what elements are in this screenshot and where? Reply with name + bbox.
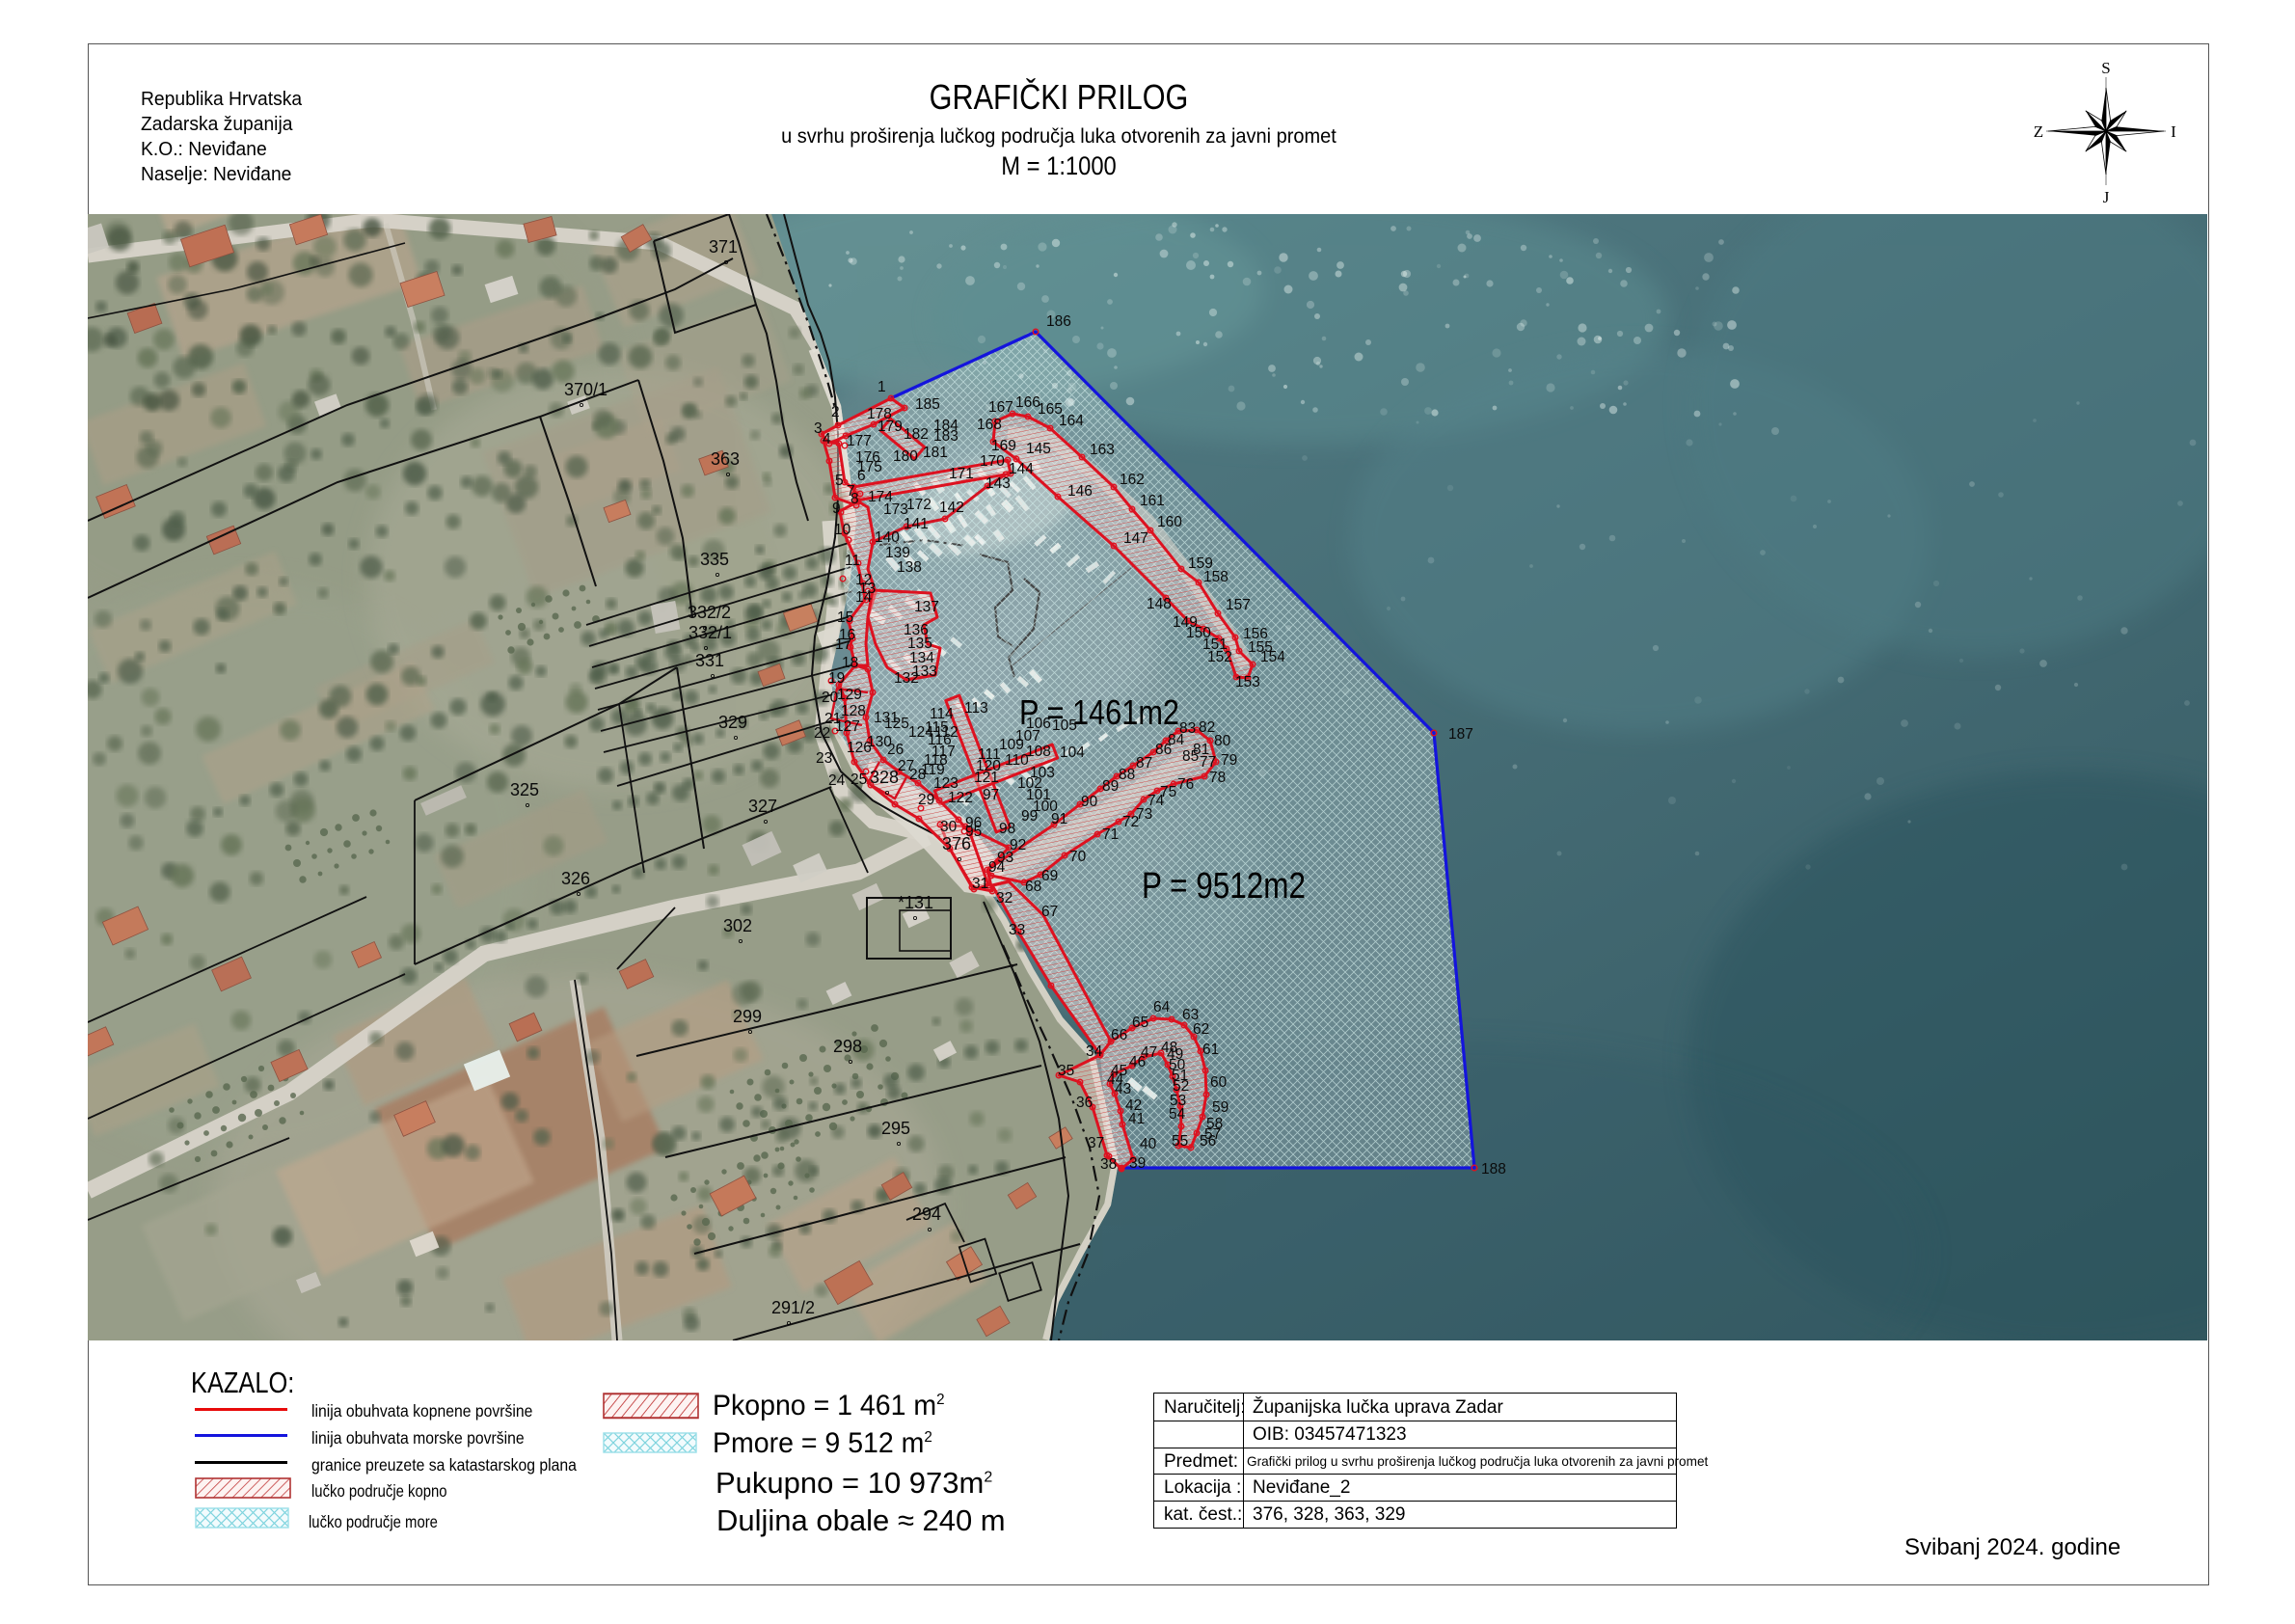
svg-text:69: 69 <box>1041 868 1058 884</box>
svg-text:291/2: 291/2 <box>771 1298 815 1317</box>
svg-text:186: 186 <box>1046 313 1071 330</box>
svg-text:325: 325 <box>510 780 539 799</box>
svg-text:147: 147 <box>1123 530 1148 547</box>
svg-text:2: 2 <box>831 404 840 420</box>
svg-text:35: 35 <box>1058 1063 1074 1079</box>
svg-text:9: 9 <box>832 501 841 517</box>
svg-text:23: 23 <box>816 750 832 767</box>
svg-text:108: 108 <box>1026 744 1051 760</box>
svg-text:176: 176 <box>855 449 880 466</box>
svg-text:25: 25 <box>850 771 867 788</box>
svg-text:I: I <box>2171 122 2176 141</box>
svg-text:32: 32 <box>996 890 1012 907</box>
svg-text:98: 98 <box>999 821 1015 837</box>
svg-text:94: 94 <box>988 859 1006 876</box>
svg-text:89: 89 <box>1102 778 1119 795</box>
svg-text:34: 34 <box>1086 1043 1103 1060</box>
svg-text:141: 141 <box>904 516 929 532</box>
svg-text:326: 326 <box>561 869 590 888</box>
svg-text:145: 145 <box>1026 441 1051 457</box>
svg-text:P = 1461m2: P = 1461m2 <box>1019 692 1179 732</box>
svg-text:11: 11 <box>845 553 860 569</box>
svg-text:58: 58 <box>1206 1116 1223 1132</box>
svg-text:P = 9512m2: P = 9512m2 <box>1142 866 1306 907</box>
svg-text:90: 90 <box>1081 794 1098 810</box>
svg-text:42: 42 <box>1125 1097 1142 1114</box>
svg-text:63: 63 <box>1182 1007 1199 1023</box>
svg-text:169: 169 <box>991 438 1016 454</box>
svg-text:65: 65 <box>1132 1015 1148 1031</box>
svg-text:294: 294 <box>912 1204 941 1224</box>
svg-text:131: 131 <box>874 710 899 726</box>
svg-text:165: 165 <box>1038 401 1063 418</box>
svg-text:68: 68 <box>1025 879 1041 895</box>
svg-text:121: 121 <box>974 770 999 786</box>
svg-text:47: 47 <box>1141 1044 1157 1061</box>
svg-text:172: 172 <box>906 497 931 513</box>
svg-text:19: 19 <box>828 670 845 687</box>
svg-text:163: 163 <box>1090 442 1115 458</box>
svg-text:104: 104 <box>1060 744 1085 761</box>
svg-text:143: 143 <box>985 475 1011 492</box>
svg-text:64: 64 <box>1153 999 1171 1015</box>
svg-text:122: 122 <box>948 790 973 806</box>
svg-text:184: 184 <box>933 418 958 434</box>
svg-text:295: 295 <box>881 1119 910 1138</box>
svg-text:328: 328 <box>870 768 899 787</box>
svg-text:171: 171 <box>949 466 974 482</box>
svg-text:148: 148 <box>1147 596 1172 612</box>
svg-text:4: 4 <box>823 431 831 447</box>
svg-text:24: 24 <box>828 772 846 789</box>
svg-text:5: 5 <box>835 473 844 489</box>
svg-text:J: J <box>2103 188 2110 206</box>
svg-text:86: 86 <box>1155 742 1172 758</box>
svg-text:78: 78 <box>1209 770 1226 786</box>
svg-text:129: 129 <box>837 687 862 703</box>
svg-text:332/1: 332/1 <box>688 623 732 642</box>
svg-text:152: 152 <box>1207 649 1232 665</box>
svg-text:8: 8 <box>850 491 859 507</box>
svg-text:124: 124 <box>908 724 933 741</box>
svg-text:162: 162 <box>1120 472 1145 488</box>
svg-text:71: 71 <box>1102 826 1119 843</box>
svg-text:76: 76 <box>1177 776 1194 793</box>
svg-text:30: 30 <box>940 819 958 835</box>
svg-text:22: 22 <box>814 725 830 742</box>
svg-text:299: 299 <box>733 1007 762 1026</box>
svg-text:128: 128 <box>841 703 866 719</box>
svg-text:363: 363 <box>711 449 740 469</box>
svg-text:160: 160 <box>1157 514 1182 530</box>
svg-text:127: 127 <box>835 718 860 735</box>
svg-text:142: 142 <box>939 500 964 516</box>
svg-text:3: 3 <box>814 420 823 437</box>
svg-text:164: 164 <box>1059 413 1084 429</box>
svg-text:18: 18 <box>842 655 858 671</box>
svg-text:103: 103 <box>1030 765 1055 781</box>
svg-text:29: 29 <box>918 792 934 808</box>
svg-text:33: 33 <box>1009 922 1025 938</box>
svg-text:82: 82 <box>1199 719 1215 736</box>
svg-text:376: 376 <box>942 834 971 853</box>
svg-text:14: 14 <box>855 589 873 606</box>
svg-text:10: 10 <box>834 522 851 538</box>
svg-text:177: 177 <box>847 433 872 449</box>
svg-text:113: 113 <box>964 700 988 717</box>
svg-text:97: 97 <box>983 787 999 803</box>
svg-text:110: 110 <box>1005 752 1029 769</box>
svg-text:180: 180 <box>893 448 918 465</box>
svg-text:S: S <box>2101 59 2110 77</box>
svg-text:137: 137 <box>914 599 939 615</box>
svg-text:370/1: 370/1 <box>564 380 607 399</box>
svg-text:70: 70 <box>1069 849 1087 865</box>
svg-text:20: 20 <box>822 690 839 706</box>
svg-text:96: 96 <box>965 815 982 831</box>
svg-text:88: 88 <box>1119 767 1135 783</box>
svg-text:170: 170 <box>980 453 1005 470</box>
svg-text:38: 38 <box>1100 1156 1117 1173</box>
svg-text:123: 123 <box>933 775 958 792</box>
svg-text:62: 62 <box>1193 1021 1209 1038</box>
svg-text:*131: *131 <box>898 893 933 912</box>
svg-text:138: 138 <box>897 559 922 576</box>
svg-text:134: 134 <box>909 650 934 666</box>
svg-text:39: 39 <box>1129 1155 1146 1172</box>
svg-text:185: 185 <box>915 396 940 413</box>
svg-text:66: 66 <box>1111 1027 1127 1043</box>
svg-text:179: 179 <box>877 419 903 435</box>
svg-text:15: 15 <box>837 609 853 626</box>
svg-text:302: 302 <box>723 916 752 935</box>
svg-text:17: 17 <box>835 636 851 653</box>
svg-text:36: 36 <box>1076 1095 1093 1111</box>
svg-text:153: 153 <box>1235 674 1260 690</box>
svg-text:144: 144 <box>1009 461 1034 477</box>
svg-text:332/2: 332/2 <box>688 603 731 622</box>
svg-text:130: 130 <box>867 734 892 750</box>
svg-text:159: 159 <box>1188 555 1213 572</box>
svg-text:1: 1 <box>877 379 886 395</box>
svg-text:298: 298 <box>833 1037 862 1056</box>
svg-text:37: 37 <box>1088 1135 1104 1151</box>
svg-text:109: 109 <box>999 737 1024 753</box>
svg-text:329: 329 <box>718 713 747 732</box>
svg-text:187: 187 <box>1448 726 1473 743</box>
svg-text:59: 59 <box>1212 1099 1228 1116</box>
svg-text:182: 182 <box>904 426 929 443</box>
svg-text:146: 146 <box>1067 483 1093 500</box>
svg-text:54: 54 <box>1169 1106 1186 1123</box>
svg-text:31: 31 <box>972 876 988 892</box>
svg-text:60: 60 <box>1210 1074 1228 1091</box>
svg-text:167: 167 <box>988 399 1013 416</box>
svg-text:55: 55 <box>1172 1133 1188 1150</box>
svg-text:85: 85 <box>1182 748 1199 765</box>
svg-text:140: 140 <box>875 529 900 546</box>
svg-text:371: 371 <box>709 237 738 257</box>
svg-text:80: 80 <box>1214 733 1231 749</box>
svg-text:61: 61 <box>1202 1042 1219 1058</box>
svg-text:79: 79 <box>1221 752 1237 769</box>
svg-text:136: 136 <box>904 622 929 638</box>
svg-text:157: 157 <box>1226 597 1251 613</box>
svg-text:335: 335 <box>700 550 729 569</box>
svg-text:174: 174 <box>868 489 893 505</box>
svg-text:166: 166 <box>1015 394 1040 411</box>
svg-text:40: 40 <box>1140 1136 1157 1152</box>
svg-text:181: 181 <box>923 445 948 461</box>
svg-text:161: 161 <box>1140 493 1165 509</box>
svg-text:327: 327 <box>748 797 777 816</box>
svg-text:139: 139 <box>885 545 910 561</box>
svg-text:87: 87 <box>1136 755 1152 771</box>
svg-text:Z: Z <box>2034 122 2043 141</box>
svg-text:156: 156 <box>1243 626 1268 642</box>
svg-text:67: 67 <box>1041 904 1058 920</box>
svg-text:168: 168 <box>977 417 1002 433</box>
svg-text:75: 75 <box>1160 784 1176 800</box>
svg-text:188: 188 <box>1481 1161 1506 1177</box>
svg-text:331: 331 <box>695 651 724 670</box>
svg-text:45: 45 <box>1111 1063 1127 1079</box>
